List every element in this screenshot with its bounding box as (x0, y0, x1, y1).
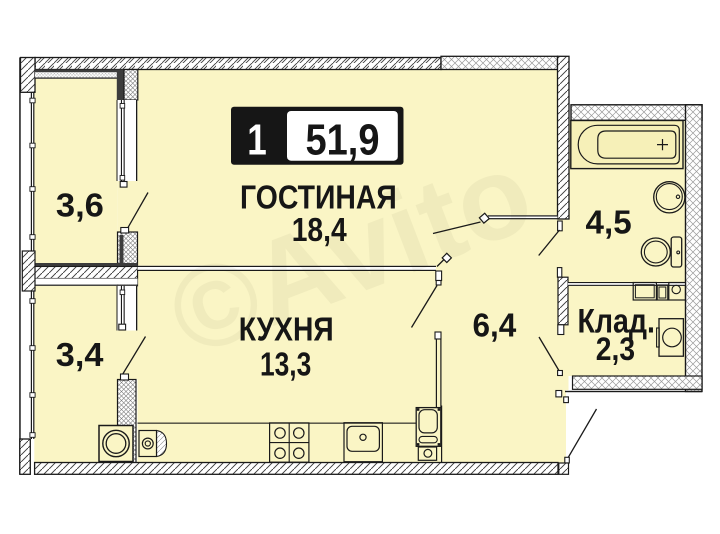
svg-text:6,4: 6,4 (473, 306, 517, 343)
svg-text:51,9: 51,9 (306, 116, 380, 165)
svg-text:3,6: 3,6 (56, 186, 104, 223)
svg-text:2,3: 2,3 (596, 331, 635, 367)
svg-text:1: 1 (247, 116, 267, 165)
svg-text:3,4: 3,4 (56, 336, 104, 373)
svg-text:4,5: 4,5 (586, 204, 632, 241)
